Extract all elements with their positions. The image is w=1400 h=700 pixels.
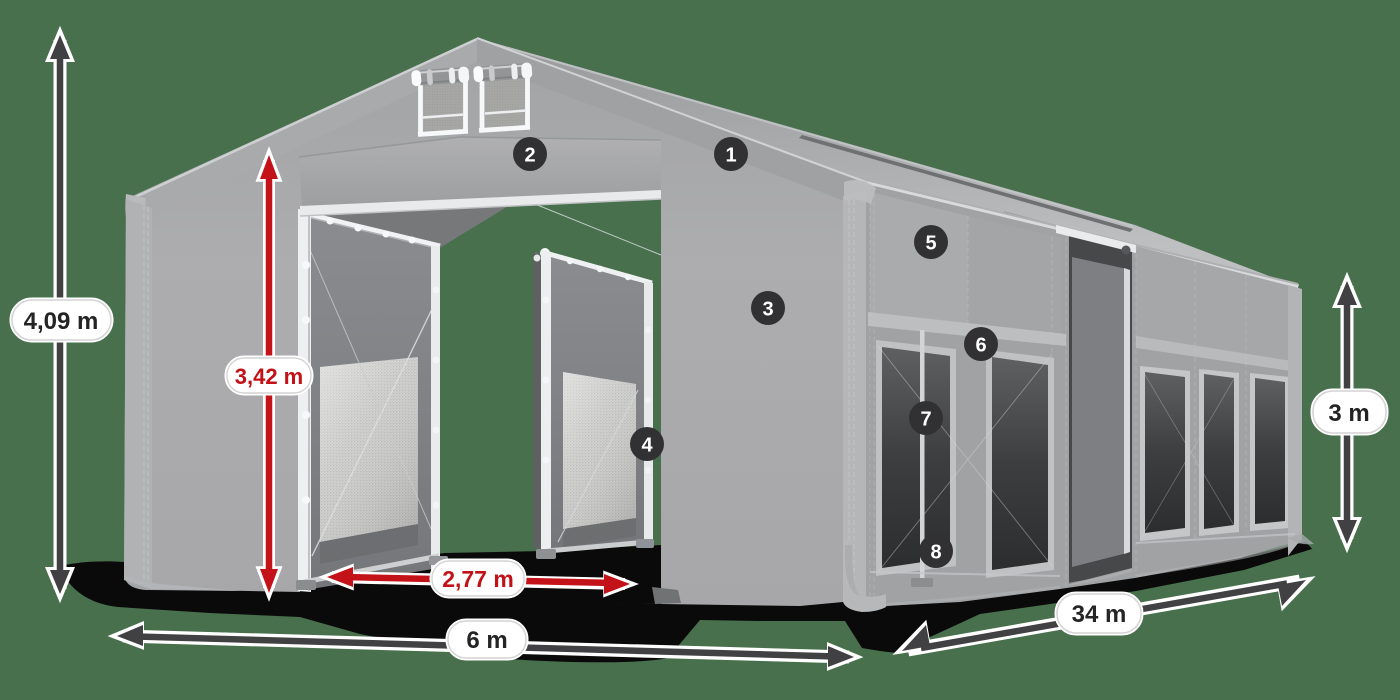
svg-text:1: 1 xyxy=(725,145,736,167)
svg-text:2: 2 xyxy=(524,145,535,167)
svg-text:34 m: 34 m xyxy=(1072,601,1127,628)
svg-text:8: 8 xyxy=(930,542,941,564)
svg-text:4: 4 xyxy=(641,435,653,457)
svg-text:3: 3 xyxy=(762,299,773,321)
svg-text:6: 6 xyxy=(975,335,986,357)
svg-text:2,77 m: 2,77 m xyxy=(442,566,514,592)
svg-text:6 m: 6 m xyxy=(466,627,507,654)
svg-text:4,09 m: 4,09 m xyxy=(24,308,99,335)
svg-text:7: 7 xyxy=(920,409,931,431)
svg-text:3,42 m: 3,42 m xyxy=(235,364,304,389)
svg-text:3 m: 3 m xyxy=(1328,400,1369,427)
svg-text:5: 5 xyxy=(925,233,936,255)
